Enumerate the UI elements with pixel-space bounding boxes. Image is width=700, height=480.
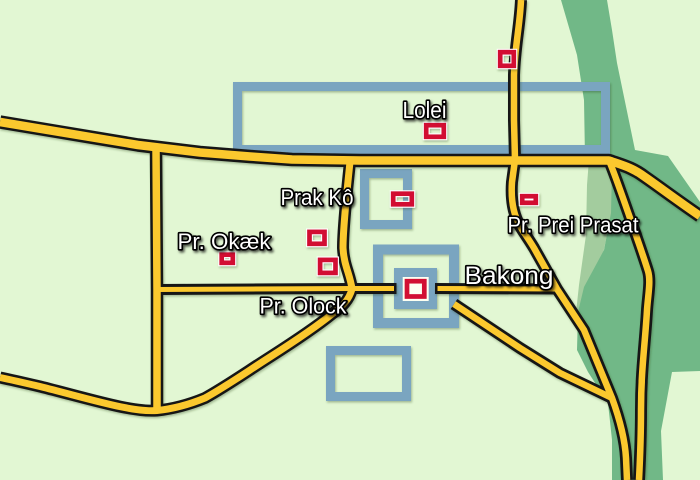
svg-text:Lolei: Lolei <box>403 97 447 123</box>
svg-text:Bakong: Bakong <box>465 262 554 290</box>
svg-text:Pr. Prei Prasat: Pr. Prei Prasat <box>508 213 639 238</box>
svg-text:Prak Kô: Prak Kô <box>281 185 354 210</box>
svg-text:Pr. Okæk: Pr. Okæk <box>178 229 272 254</box>
svg-text:Pr. Olock: Pr. Olock <box>260 294 348 319</box>
